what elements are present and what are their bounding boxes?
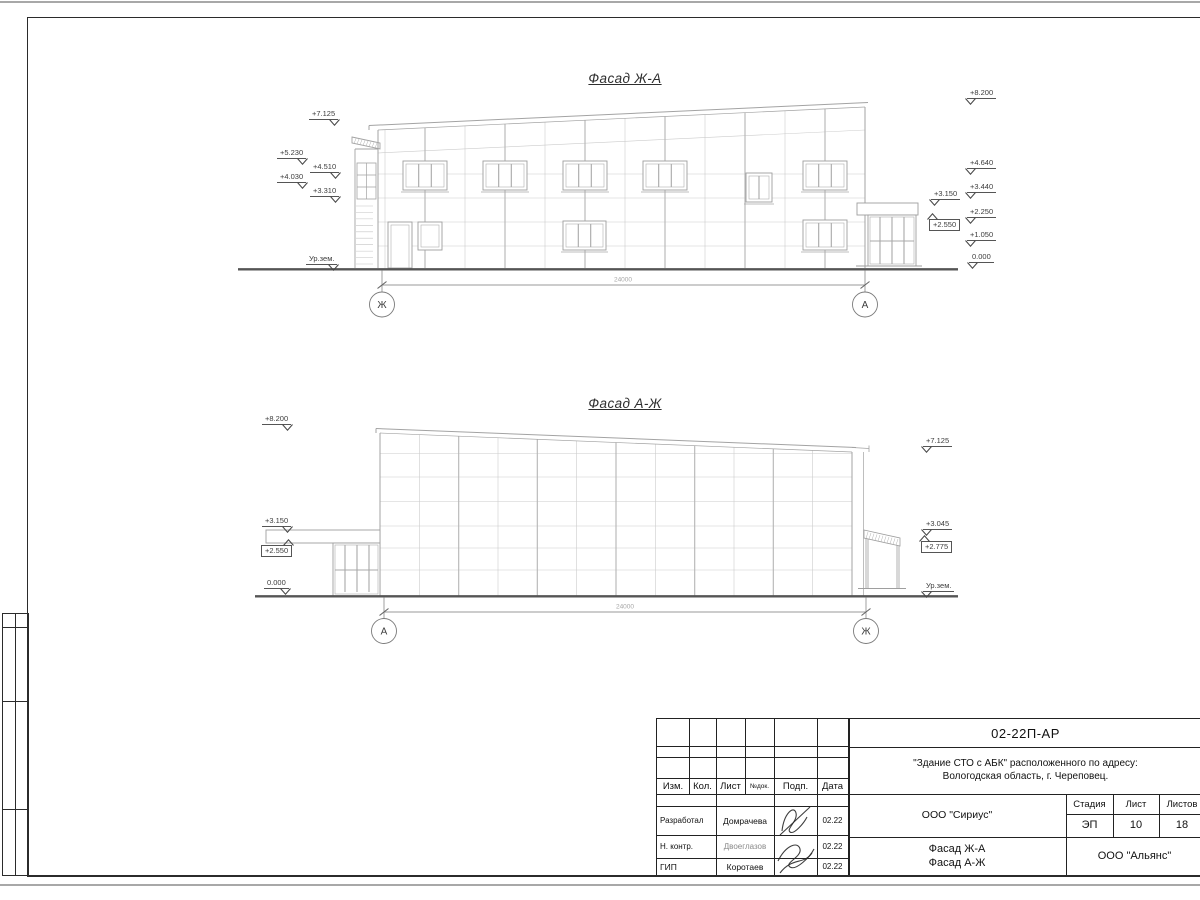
col-sheet: Лист: [1113, 794, 1159, 814]
sheet-content-line2: Фасад А-Ж: [929, 856, 986, 870]
row2-role: Н. контр.: [657, 835, 719, 858]
facade2-dimension: 24000: [616, 604, 634, 611]
row3-name: Коротаев: [716, 858, 774, 875]
col-list: Лист: [716, 778, 745, 794]
project-line1: "Здание СТО с АБК" расположенного по адр…: [913, 758, 1138, 771]
col-stadia: Стадия: [1066, 794, 1113, 814]
stadia-value: ЭП: [1066, 814, 1113, 837]
level-mark: +3.150: [931, 189, 960, 200]
level-mark: +8.200: [262, 414, 291, 425]
facade1-windows: [388, 161, 847, 268]
level-mark: +5.230: [277, 148, 306, 159]
level-mark: +4.510: [310, 162, 339, 173]
level-mark: +4.030: [277, 172, 306, 183]
col-sheets: Листов: [1159, 794, 1200, 814]
level-mark: +1.050: [967, 230, 996, 241]
level-mark: +3.150: [262, 516, 291, 527]
level-mark: +3.310: [310, 186, 339, 197]
level-mark-ground: Ур.зем.: [306, 254, 337, 265]
facade2-drawing: А Ж 24000: [255, 429, 958, 644]
col-podp: Подп.: [774, 778, 817, 794]
row3-date: 02.22: [817, 858, 848, 875]
row1-date: 02.22: [817, 806, 848, 835]
col-kol: Кол.: [689, 778, 716, 794]
level-mark-boxed: +2.550: [929, 219, 960, 231]
facade1-entrance: [856, 203, 922, 266]
level-mark: +3.045: [923, 519, 952, 530]
level-mark: +2.250: [967, 207, 996, 218]
facade2-title: Фасад А-Ж: [588, 396, 661, 411]
level-mark: 0.000: [969, 252, 994, 263]
level-mark-boxed: +2.775: [921, 541, 952, 553]
level-mark: +4.640: [967, 158, 996, 169]
facade2-axis-left: А: [381, 627, 388, 638]
col-izm: Изм.: [657, 778, 689, 794]
level-mark: +8.200: [967, 88, 996, 99]
facade1-axis-right: А: [862, 300, 869, 311]
sheets-total: 18: [1159, 814, 1200, 837]
row1-role: Разработал: [657, 806, 719, 835]
level-mark: +3.440: [967, 182, 996, 193]
level-mark: +7.125: [309, 109, 338, 120]
facade1-axis-left: Ж: [377, 300, 387, 311]
project-name: "Здание СТО с АБК" расположенного по адр…: [848, 747, 1200, 794]
row1-name: Домрачева: [716, 806, 774, 835]
facade1-stair-tower: [352, 137, 380, 268]
signature-scribbles: [774, 799, 819, 875]
facade1-dimension: 24000: [614, 277, 632, 284]
designer-org: ООО "Сириус": [848, 794, 1066, 837]
sheet-content-line1: Фасад Ж-А: [929, 842, 986, 856]
level-mark-boxed: +2.550: [261, 545, 292, 557]
level-mark: 0.000: [264, 578, 289, 589]
level-mark-ground: Ур.зем.: [923, 581, 954, 592]
facade1-title: Фасад Ж-А: [588, 71, 661, 86]
col-data: Дата: [817, 778, 848, 794]
facade1-annotations: Ж А 24000: [238, 269, 958, 317]
facade2-axis-right: Ж: [861, 627, 871, 638]
facade2-stair-canopy: [858, 530, 906, 589]
sheet-content: Фасад Ж-А Фасад А-Ж: [848, 837, 1066, 876]
row2-date: 02.22: [817, 835, 848, 858]
doc-code: 02-22П-АР: [848, 719, 1200, 747]
level-mark: +7.125: [923, 436, 952, 447]
row3-role: ГИП: [657, 858, 719, 875]
facade2-annotations: А Ж 24000: [255, 596, 958, 643]
title-block: Изм. Кол. Лист №док. Подп. Дата Разработ…: [656, 718, 1200, 875]
client-org: ООО "Альянс": [1066, 837, 1200, 876]
project-line2: Вологодская область, г. Череповец.: [943, 771, 1109, 784]
sheet-number: 10: [1113, 814, 1159, 837]
row2-name: Двоеглазов: [716, 835, 774, 858]
facade1-drawing: Ж А 24000: [238, 103, 958, 318]
col-ndok: №док.: [745, 778, 774, 794]
